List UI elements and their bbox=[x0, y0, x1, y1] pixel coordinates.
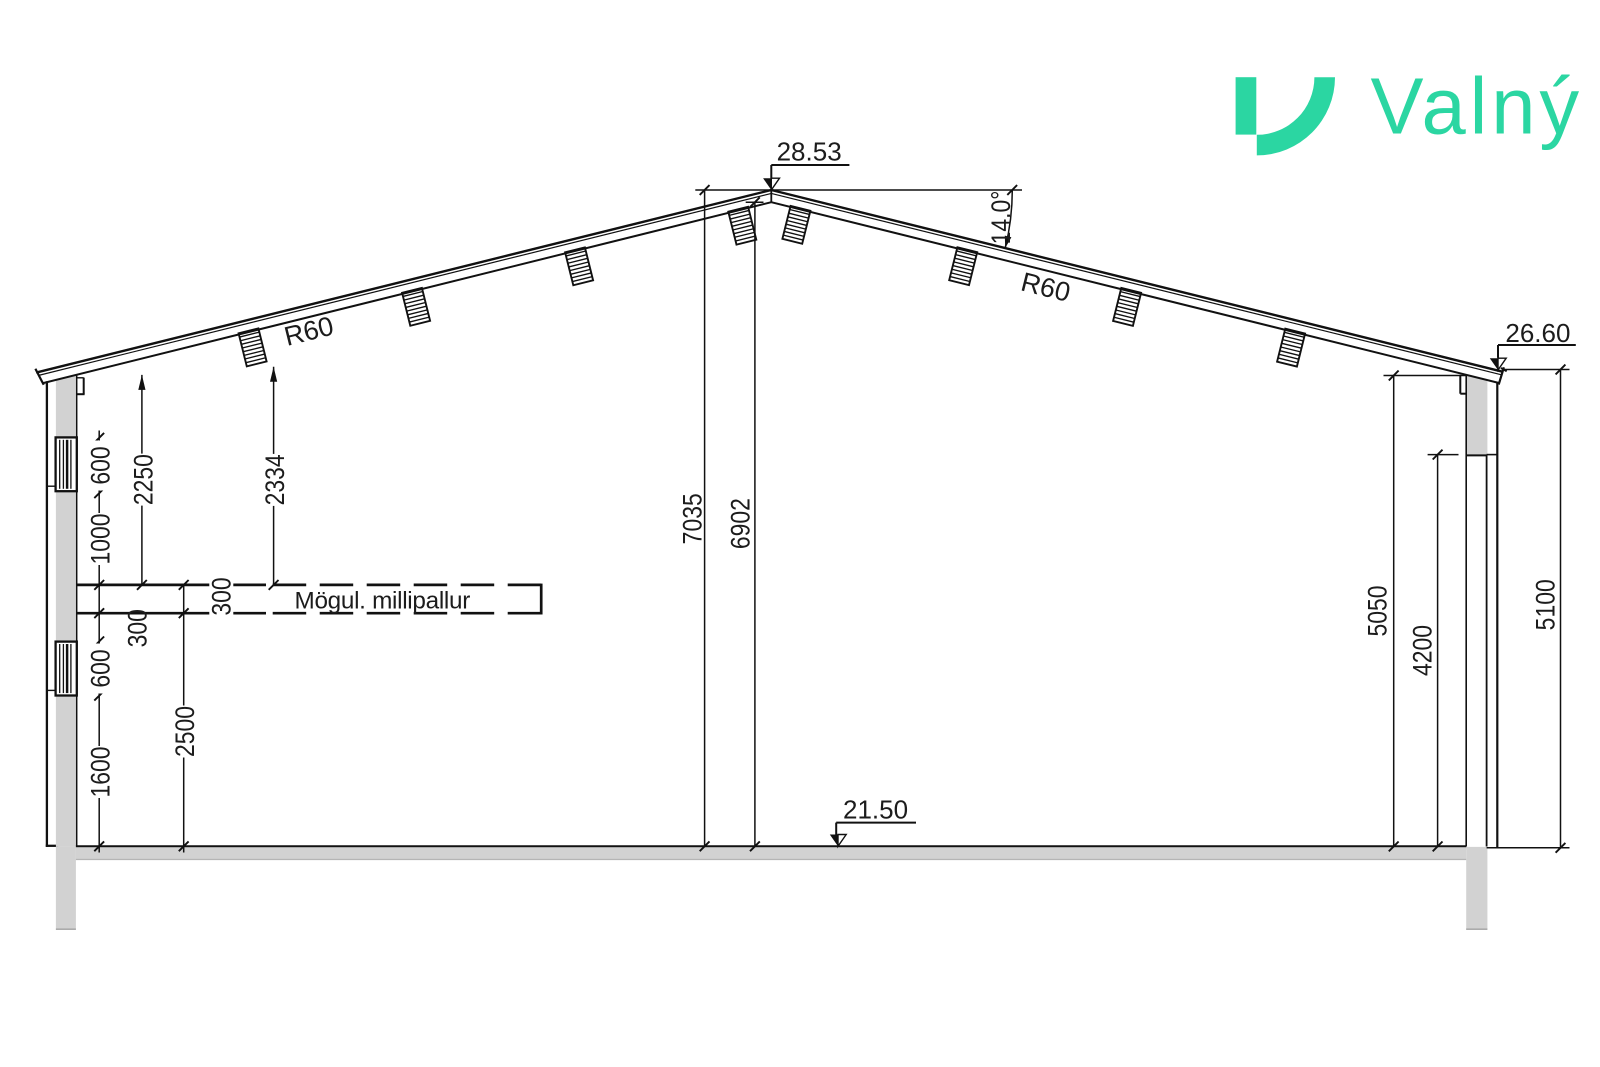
svg-text:2334: 2334 bbox=[260, 454, 290, 505]
svg-text:Mögul. millipallur: Mögul. millipallur bbox=[295, 587, 471, 614]
svg-text:7035: 7035 bbox=[678, 493, 708, 544]
svg-text:300: 300 bbox=[123, 609, 153, 647]
svg-text:6902: 6902 bbox=[726, 498, 756, 549]
svg-text:5050: 5050 bbox=[1363, 585, 1393, 636]
svg-text:2500: 2500 bbox=[170, 706, 200, 757]
svg-text:1000: 1000 bbox=[86, 513, 116, 564]
svg-text:26.60: 26.60 bbox=[1505, 318, 1570, 348]
svg-text:600: 600 bbox=[86, 649, 116, 687]
svg-text:300: 300 bbox=[207, 577, 237, 615]
svg-text:600: 600 bbox=[86, 446, 116, 484]
svg-text:14.0°: 14.0° bbox=[986, 191, 1016, 245]
svg-text:Valný: Valný bbox=[1371, 61, 1583, 150]
svg-text:21.50: 21.50 bbox=[843, 795, 908, 825]
svg-text:5100: 5100 bbox=[1531, 579, 1561, 630]
svg-text:1600: 1600 bbox=[86, 746, 116, 797]
svg-text:2250: 2250 bbox=[129, 454, 159, 505]
svg-text:28.53: 28.53 bbox=[777, 136, 842, 166]
svg-text:4200: 4200 bbox=[1408, 625, 1438, 676]
